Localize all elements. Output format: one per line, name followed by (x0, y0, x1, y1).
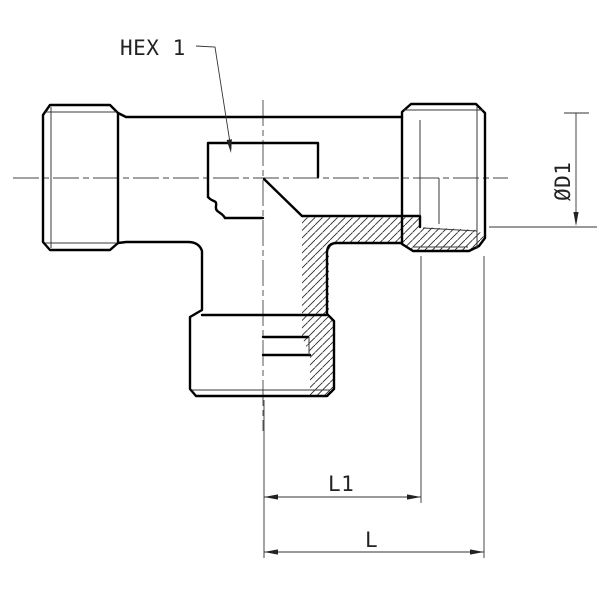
left-end-cap (43, 105, 118, 250)
l-dimension: L (264, 256, 484, 558)
l-left-arrowhead (264, 549, 278, 554)
technical-drawing-canvas: HEX 1 ØD1 L1 L (0, 0, 600, 600)
diameter-dim-label: ØD1 (551, 162, 575, 201)
l1-left-arrowhead (264, 494, 278, 499)
l1-dim-label: L1 (328, 472, 354, 496)
break-line-squiggle (208, 197, 225, 218)
hex-callout-label: HEX 1 (120, 36, 186, 60)
hex-leader-arrowhead (227, 139, 232, 153)
l1-right-arrowhead (407, 494, 421, 499)
body-bottom-and-branch (118, 242, 402, 396)
diameter-dimension: ØD1 (489, 113, 597, 227)
part-outline (43, 104, 485, 396)
hex-leader-line (196, 46, 231, 149)
d1-arrowhead (573, 212, 578, 226)
section-diagonal (264, 179, 302, 216)
l-dim-label: L (365, 528, 378, 552)
body-top-edge (118, 113, 402, 117)
hex-callout: HEX 1 (120, 36, 232, 153)
l-right-arrowhead (470, 549, 484, 554)
l1-dimension: L1 (264, 256, 421, 558)
centerlines (13, 100, 508, 431)
tee-fitting-drawing: HEX 1 ØD1 L1 L (0, 0, 600, 600)
